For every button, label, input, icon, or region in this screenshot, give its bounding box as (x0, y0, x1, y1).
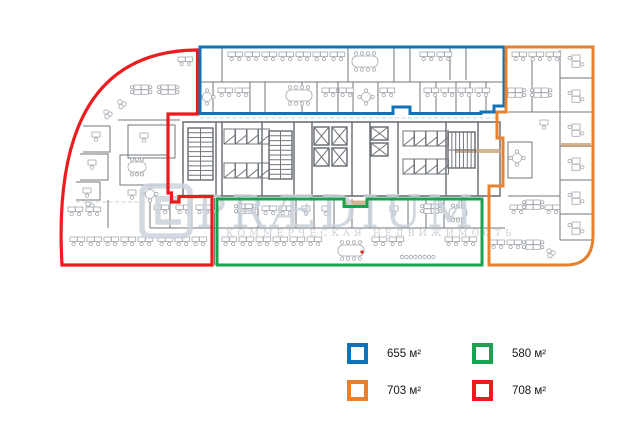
watermark: PRÆDIUM КОММЕРЧЕСКАЯ НЕДВИЖИМОСТЬ (142, 185, 515, 239)
legend-swatch-green (472, 343, 493, 364)
floor-plan-page: PRÆDIUM КОММЕРЧЕСКАЯ НЕДВИЖИМОСТЬ 655 м²… (0, 0, 643, 426)
legend-item-708: 708 м² (472, 380, 546, 401)
floor-plan-svg: PRÆDIUM КОММЕРЧЕСКАЯ НЕДВИЖИМОСТЬ (0, 0, 643, 426)
legend-item-580: 580 м² (472, 343, 546, 364)
legend-label-708: 708 м² (512, 385, 546, 397)
legend-label-580: 580 м² (512, 348, 546, 360)
legend-swatch-orange (347, 380, 368, 401)
legend-item-703: 703 м² (347, 380, 421, 401)
red-marker-dot (360, 250, 363, 253)
watermark-tagline: КОММЕРЧЕСКАЯ НЕДВИЖИМОСТЬ (226, 228, 515, 239)
legend-item-655: 655 м² (347, 343, 421, 364)
legend-swatch-red (472, 380, 493, 401)
legend-label-703: 703 м² (387, 385, 421, 397)
legend-label-655: 655 м² (387, 348, 421, 360)
legend-swatch-blue (347, 343, 368, 364)
